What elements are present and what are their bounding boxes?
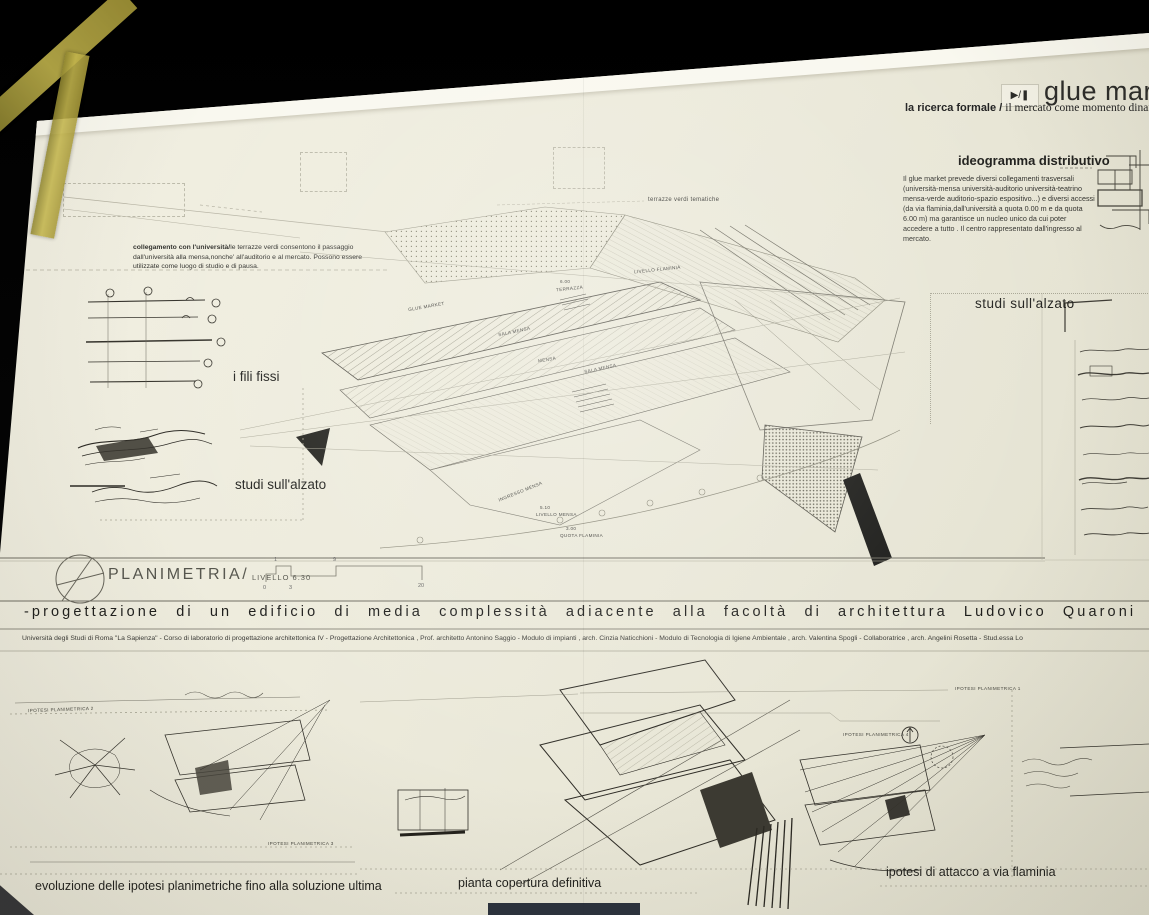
label-terrazze-verdi: terrazze verdi tematiche <box>648 197 719 203</box>
scale-tick: 20 <box>418 583 424 589</box>
dashed-guide-box <box>300 152 347 192</box>
planimetria-level: LIVELLO 6.30 <box>252 573 311 582</box>
subtitle-lead: la ricerca formale / <box>905 102 1005 114</box>
dashed-guide-box <box>63 183 185 217</box>
hand-sketches-left <box>70 431 217 503</box>
ideogramma-body: Il glue market prevede diversi collegame… <box>903 174 1095 244</box>
collegamento-lead: collegamento con l'università/ <box>133 244 230 251</box>
ideogramma-heading: ideogramma distributivo <box>958 153 1110 168</box>
elevation-study-sketch <box>86 287 225 432</box>
label-ipotesi-2: IPOTESI PLANIMETRICA 2 <box>28 706 94 713</box>
label-ipotesi-3: IPOTESI PLANIMETRICA 3 <box>268 841 334 846</box>
label-fili-fissi: i fili fissi <box>233 369 280 384</box>
project-subtitle: la ricerca formale / il mercato come mom… <box>905 102 1149 114</box>
scale-tick: 3 <box>289 585 292 591</box>
plan-quota: 5.10 <box>540 505 550 510</box>
plan-quota: 3.00 <box>566 526 576 531</box>
corner-shadow <box>0 880 34 915</box>
plan-label: QUOTA FLAMINIA <box>560 533 603 538</box>
caption-copertura: pianta copertura definitiva <box>458 876 601 890</box>
board-seam <box>683 0 700 34</box>
plan-label: TERRAZZA <box>556 285 583 293</box>
dashed-guide-box <box>553 147 605 189</box>
label-ipotesi-4: IPOTESI PLANIMETRICA 4 <box>843 732 909 737</box>
photo-vignette <box>0 0 1149 915</box>
plan-label: INGRESSO MENSA <box>498 480 543 502</box>
plan-label: LIVELLO MENSA <box>536 512 577 517</box>
caption-evoluzione: evoluzione delle ipotesi planimetriche f… <box>35 879 382 893</box>
plan-label: SALA MENSA <box>498 326 531 338</box>
table-edge-shadow <box>488 903 640 915</box>
plan-quota: 6.00 <box>560 279 570 284</box>
plan-label: LIVELLO FLAMINIA <box>634 265 681 275</box>
label-studi-alzato-left: studi sull'alzato <box>235 477 326 492</box>
plan-label: MENSA <box>538 355 557 363</box>
planimetria-title: PLANIMETRIA/ <box>108 566 249 584</box>
poster-sheet: ▶/❚ glue market la ricerca formale / il … <box>0 0 1149 915</box>
photo-of-presentation-board: ▶/❚ glue market la ricerca formale / il … <box>0 0 1149 915</box>
label-studi-alzato-right: studi sull'alzato <box>975 296 1075 311</box>
right-panel-frame <box>930 293 1149 424</box>
caption-flaminia: ipotesi di attacco a via flaminia <box>886 865 1056 879</box>
board-crease <box>583 30 584 915</box>
credits-line: Università degli Studi di Roma "La Sapie… <box>22 635 1149 642</box>
scale-tick: 1 <box>274 557 277 563</box>
scale-tick: 0 <box>263 585 266 591</box>
label-ipotesi-1: IPOTESI PLANIMETRICA 1 <box>955 686 1021 691</box>
scale-tick: 9 <box>333 557 336 563</box>
drawings-layer <box>0 0 1149 915</box>
north-compass-icon <box>56 555 104 603</box>
collegamento-note: collegamento con l'università/le terrazz… <box>133 243 375 272</box>
plan-label: SALA MENSA <box>584 363 617 375</box>
course-title: -progettazione di un edificio di media c… <box>24 604 1149 620</box>
plan-label: GLUE MARKET <box>408 301 445 312</box>
subtitle-rest: il mercato come momento dinamico <box>1005 102 1149 114</box>
